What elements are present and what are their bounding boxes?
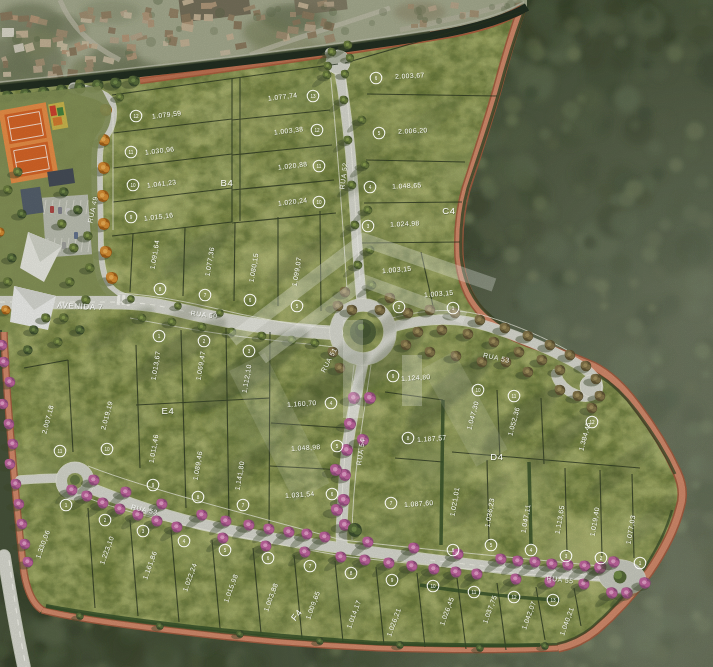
svg-text:2: 2 [398, 305, 401, 310]
svg-text:11: 11 [472, 590, 477, 595]
svg-text:3: 3 [367, 224, 370, 229]
svg-text:6: 6 [375, 76, 378, 81]
svg-text:3: 3 [142, 529, 145, 534]
svg-text:10: 10 [316, 200, 322, 205]
svg-text:10: 10 [130, 183, 136, 188]
svg-text:D4: D4 [490, 451, 503, 462]
svg-text:6: 6 [249, 298, 252, 303]
svg-text:1: 1 [158, 334, 161, 339]
svg-text:5: 5 [378, 131, 381, 136]
svg-text:3: 3 [248, 349, 251, 354]
svg-text:13: 13 [550, 598, 556, 603]
svg-text:4: 4 [330, 401, 333, 406]
svg-text:5: 5 [490, 543, 493, 548]
svg-text:8: 8 [159, 287, 162, 292]
svg-text:2: 2 [203, 339, 206, 344]
svg-text:9: 9 [391, 578, 394, 583]
svg-text:5: 5 [296, 304, 299, 309]
svg-text:12: 12 [133, 114, 139, 119]
svg-text:8: 8 [407, 436, 410, 441]
svg-text:9: 9 [130, 215, 133, 220]
svg-text:B4: B4 [221, 177, 234, 188]
svg-text:6: 6 [452, 548, 455, 553]
svg-text:10: 10 [430, 584, 436, 589]
svg-text:12: 12 [589, 420, 595, 425]
svg-text:11: 11 [129, 150, 134, 155]
svg-text:8: 8 [197, 495, 200, 500]
svg-text:6: 6 [331, 492, 334, 497]
svg-text:10: 10 [104, 447, 110, 452]
svg-text:9: 9 [392, 374, 395, 379]
svg-text:7: 7 [204, 293, 207, 298]
svg-text:7: 7 [242, 503, 245, 508]
svg-text:3: 3 [565, 554, 568, 559]
svg-text:5: 5 [336, 444, 339, 449]
svg-text:12: 12 [511, 595, 517, 600]
svg-text:1: 1 [65, 503, 68, 508]
svg-text:2: 2 [104, 518, 107, 523]
svg-text:E4: E4 [162, 405, 175, 416]
svg-text:1: 1 [452, 306, 455, 311]
svg-text:7: 7 [309, 564, 312, 569]
svg-text:5: 5 [224, 548, 227, 553]
svg-text:12: 12 [314, 128, 320, 133]
svg-text:9: 9 [152, 483, 155, 488]
svg-text:7: 7 [390, 501, 393, 506]
svg-text:13: 13 [310, 94, 316, 99]
svg-text:2: 2 [600, 556, 603, 561]
svg-text:11: 11 [512, 394, 517, 399]
svg-text:4: 4 [369, 185, 372, 190]
svg-text:1: 1 [639, 561, 642, 566]
svg-text:6: 6 [267, 556, 270, 561]
svg-text:10: 10 [475, 388, 481, 393]
svg-text:4: 4 [530, 548, 533, 553]
svg-text:11: 11 [317, 164, 322, 169]
svg-text:C4: C4 [442, 205, 455, 216]
svg-text:8: 8 [350, 571, 353, 576]
svg-text:4: 4 [183, 539, 186, 544]
svg-text:11: 11 [58, 449, 63, 454]
